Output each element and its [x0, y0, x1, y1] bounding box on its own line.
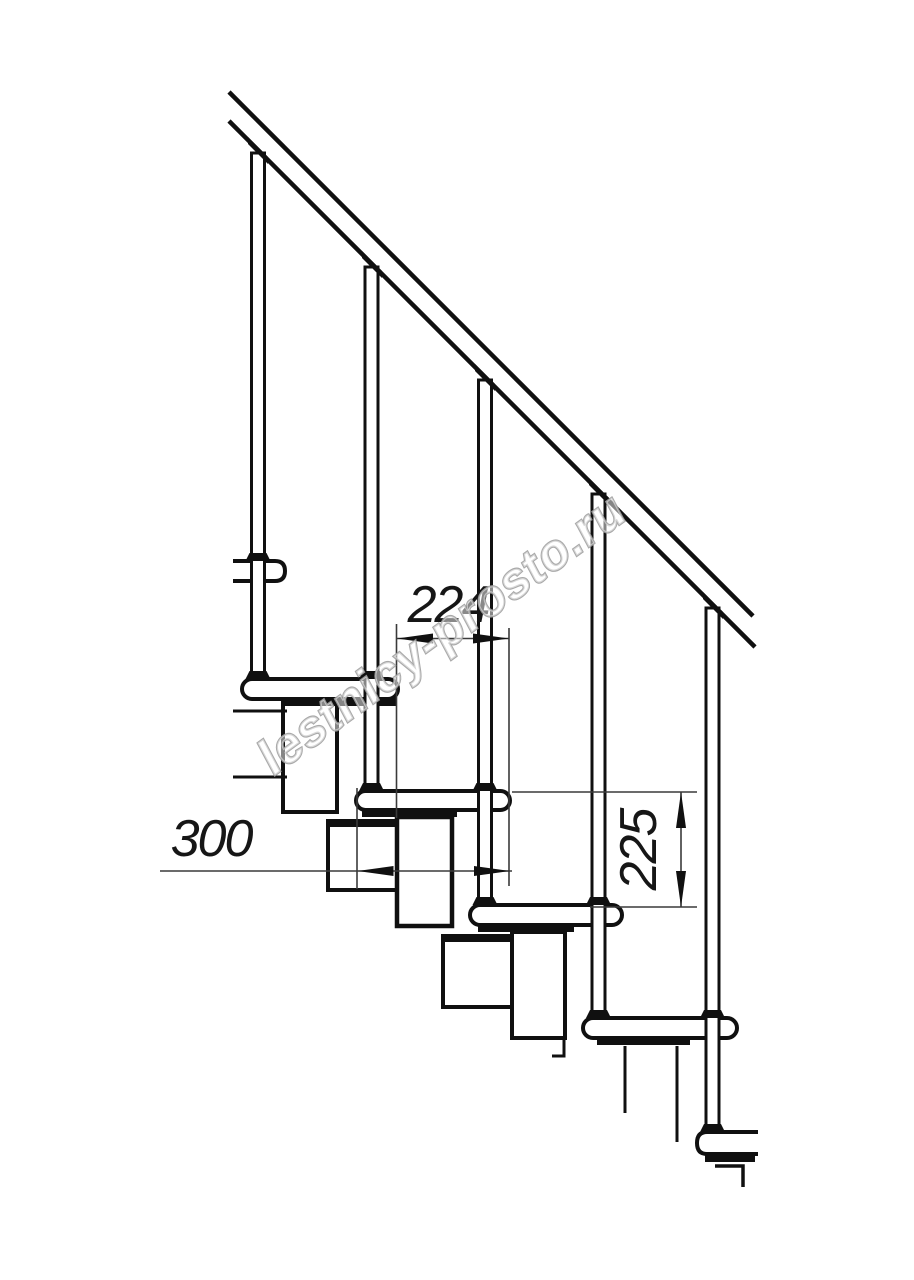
dim-225-label: 225: [610, 807, 668, 892]
support-module-2: [328, 822, 403, 890]
treads: [233, 561, 758, 1154]
baluster-5-base-flange: [700, 1124, 725, 1132]
support-modules: [283, 700, 743, 1187]
baluster-1-base-flange: [246, 671, 271, 679]
baluster-1-collar-tread-1: [246, 553, 271, 561]
dim-225-arrow-down: [676, 871, 686, 907]
support-module-7-partial-outline: [715, 1166, 743, 1187]
dim-300-label: 300: [171, 810, 254, 868]
baluster-1: [252, 153, 265, 679]
baluster-2-base-flange: [359, 783, 384, 791]
dim-225-arrow-up: [676, 792, 686, 828]
baluster-3: [479, 380, 492, 905]
support-module-4-top-plate: [441, 934, 519, 942]
tread-underside-bars: [283, 697, 755, 1162]
support-module-5-tail: [552, 1038, 564, 1056]
tread-6-partial: [697, 1132, 758, 1154]
support-module-4: [443, 937, 517, 1007]
baluster-5: [706, 608, 719, 1132]
baluster-4-collar-tread-4: [586, 897, 611, 905]
support-module-5: [512, 932, 565, 1038]
baluster-3-base-flange: [473, 897, 498, 905]
baluster-5-collar-tread-5: [700, 1010, 725, 1018]
baluster-4-base-flange: [586, 1010, 611, 1018]
support-module-2-top-plate: [326, 819, 405, 827]
baluster-3-collar-tread-3: [473, 783, 498, 791]
staircase-side-view-drawing: 224 300 225 lestnicy-prosto.ru: [0, 0, 914, 1280]
watermark-text: lestnicy-prosto.ru: [251, 479, 634, 787]
staircase-drawing-page: 224 300 225 lestnicy-prosto.ru: [0, 0, 914, 1280]
baluster-4: [592, 494, 605, 1018]
